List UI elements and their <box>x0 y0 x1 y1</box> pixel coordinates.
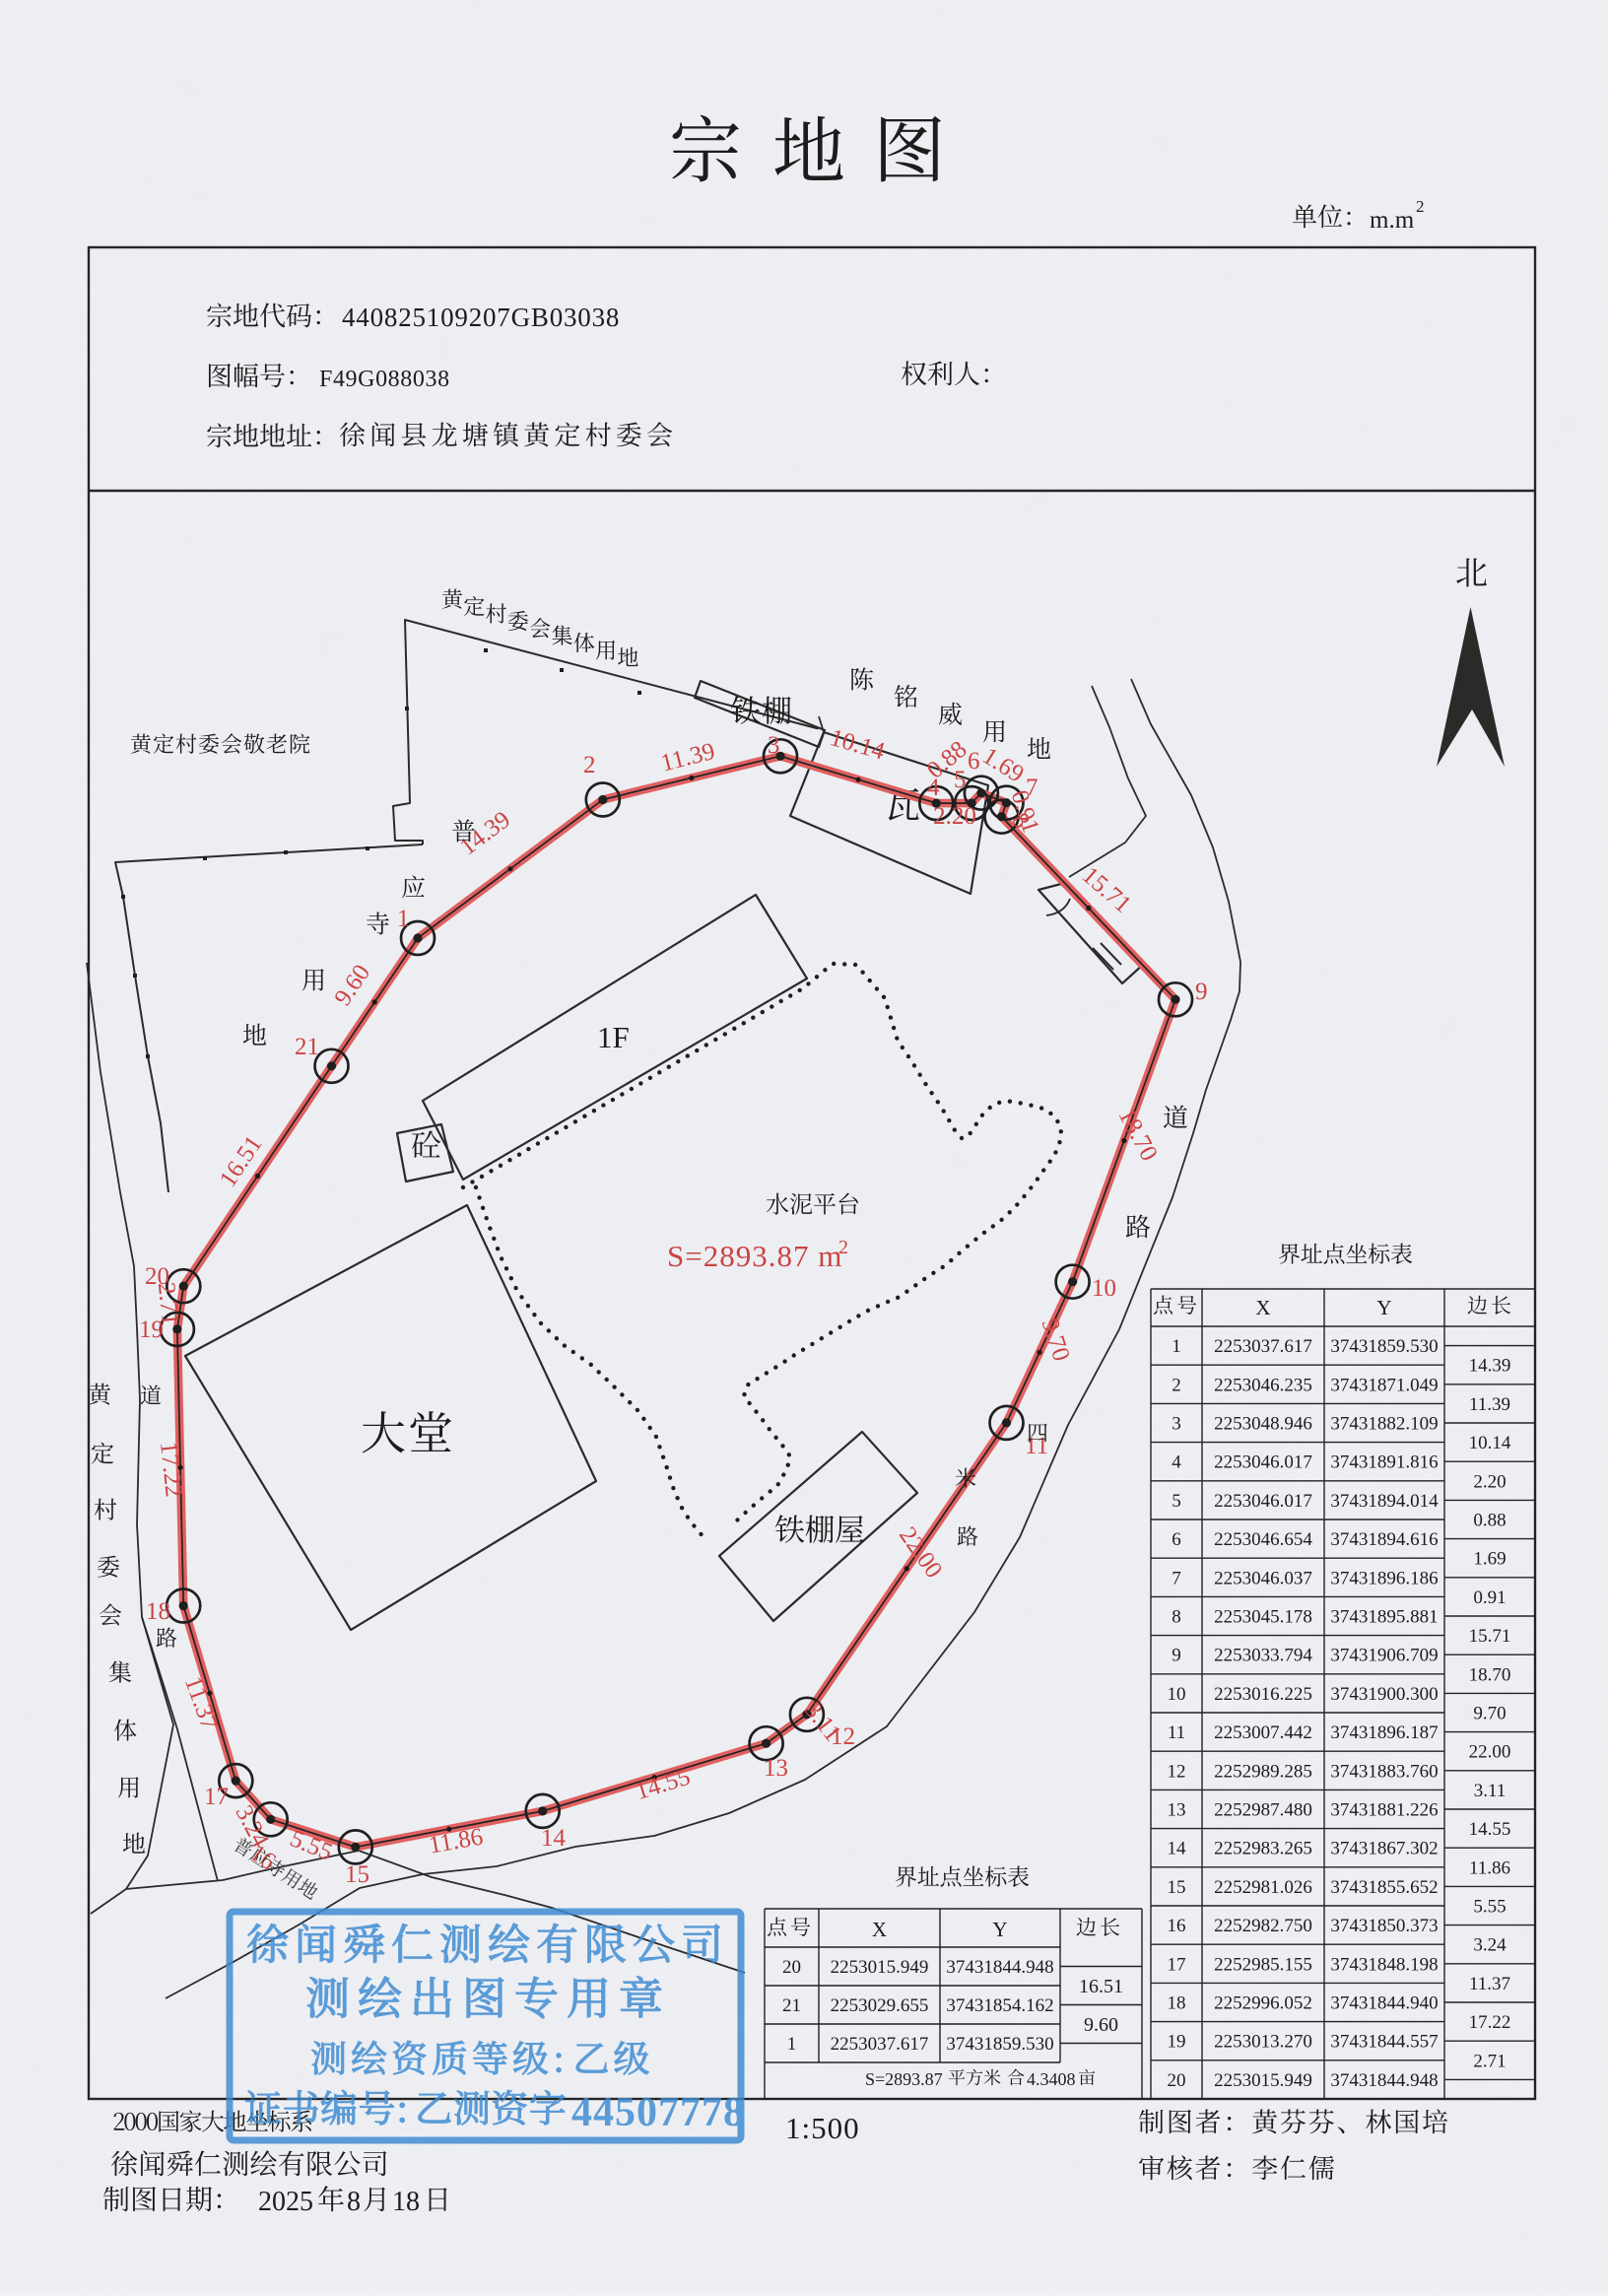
svg-text:22.00: 22.00 <box>1469 1742 1511 1763</box>
svg-text:37431895.881: 37431895.881 <box>1330 1607 1438 1628</box>
svg-text:37431867.302: 37431867.302 <box>1330 1839 1438 1859</box>
svg-text:16: 16 <box>1168 1916 1186 1936</box>
svg-text:21: 21 <box>295 1034 319 1060</box>
svg-text:2253016.225: 2253016.225 <box>1214 1684 1312 1705</box>
svg-text:440825109207GB03038: 440825109207GB03038 <box>342 303 620 332</box>
svg-text:37431855.652: 37431855.652 <box>1330 1877 1438 1898</box>
svg-text:13: 13 <box>1168 1800 1186 1821</box>
svg-text:37431844.948: 37431844.948 <box>1330 2070 1438 2091</box>
svg-text:2.71: 2.71 <box>153 1281 183 1326</box>
svg-text:37431896.186: 37431896.186 <box>1330 1568 1438 1588</box>
svg-text:11.37: 11.37 <box>1469 1974 1510 1994</box>
svg-text:2253046.235: 2253046.235 <box>1214 1375 1312 1395</box>
svg-text:2253046.654: 2253046.654 <box>1214 1529 1312 1550</box>
svg-text:5: 5 <box>1172 1491 1181 1512</box>
svg-text:2253029.655: 2253029.655 <box>831 1995 929 2016</box>
svg-text:16.51: 16.51 <box>1079 1976 1123 1997</box>
svg-text:37431894.616: 37431894.616 <box>1330 1529 1438 1550</box>
svg-text:11.86: 11.86 <box>1469 1857 1510 1878</box>
svg-text:14: 14 <box>1168 1839 1187 1859</box>
svg-text:3: 3 <box>1172 1414 1181 1435</box>
svg-text:2252983.265: 2252983.265 <box>1214 1839 1312 1859</box>
svg-text:2253033.794: 2253033.794 <box>1214 1646 1312 1666</box>
svg-text:3.11: 3.11 <box>1474 1781 1507 1801</box>
svg-text:2252996.052: 2252996.052 <box>1214 1993 1312 2014</box>
svg-text:9.60: 9.60 <box>1084 2014 1118 2036</box>
svg-text:37431854.162: 37431854.162 <box>946 1995 1053 2016</box>
svg-text:1: 1 <box>787 2034 797 2055</box>
svg-text:17: 17 <box>204 1784 229 1810</box>
svg-text:X: X <box>1255 1296 1270 1319</box>
svg-text:6: 6 <box>1172 1529 1181 1550</box>
svg-text:2.20: 2.20 <box>1473 1471 1506 1492</box>
svg-text:37431896.187: 37431896.187 <box>1330 1722 1438 1743</box>
svg-text:1F: 1F <box>597 1020 630 1054</box>
svg-text:1:500: 1:500 <box>785 2111 860 2145</box>
svg-text:37431894.014: 37431894.014 <box>1330 1491 1439 1512</box>
svg-text:2252985.155: 2252985.155 <box>1214 1954 1312 1975</box>
svg-text:2252981.026: 2252981.026 <box>1214 1877 1312 1898</box>
svg-text:S=2893.87: S=2893.87 <box>865 2069 943 2089</box>
svg-text:17: 17 <box>1168 1954 1186 1975</box>
svg-text:2025: 2025 <box>258 2187 313 2217</box>
svg-text:15.71: 15.71 <box>1469 1626 1511 1647</box>
svg-text:37431844.557: 37431844.557 <box>1330 2032 1438 2053</box>
svg-text:37431848.198: 37431848.198 <box>1330 1954 1438 1975</box>
svg-text:14: 14 <box>541 1825 567 1852</box>
svg-text:Y: Y <box>992 1918 1007 1941</box>
svg-text:F49G088038: F49G088038 <box>319 367 450 392</box>
svg-text:0.91: 0.91 <box>1473 1587 1506 1608</box>
svg-text:20: 20 <box>1168 2070 1186 2091</box>
svg-text:2253013.270: 2253013.270 <box>1214 2032 1312 2053</box>
svg-text:2252989.285: 2252989.285 <box>1214 1761 1312 1782</box>
svg-text:12: 12 <box>1168 1761 1186 1782</box>
svg-text:3: 3 <box>768 732 780 759</box>
svg-text:2: 2 <box>838 1237 848 1258</box>
svg-text:37431891.816: 37431891.816 <box>1330 1452 1438 1473</box>
svg-text:2252982.750: 2252982.750 <box>1214 1916 1312 1936</box>
svg-text:2253048.946: 2253048.946 <box>1214 1414 1312 1435</box>
svg-text:2: 2 <box>1416 197 1425 216</box>
svg-text:18: 18 <box>392 2187 420 2217</box>
svg-text:17.22: 17.22 <box>1469 2012 1511 2033</box>
svg-text:2253045.178: 2253045.178 <box>1214 1607 1312 1628</box>
svg-text:15: 15 <box>1168 1877 1186 1898</box>
svg-text:37431881.226: 37431881.226 <box>1330 1800 1438 1821</box>
svg-text:37431882.109: 37431882.109 <box>1330 1414 1438 1435</box>
svg-text:37431859.530: 37431859.530 <box>946 2034 1053 2055</box>
svg-text:37431906.709: 37431906.709 <box>1330 1646 1438 1666</box>
svg-text:15: 15 <box>345 1861 369 1888</box>
svg-text:2253046.017: 2253046.017 <box>1214 1452 1312 1473</box>
svg-text:6: 6 <box>968 748 980 775</box>
svg-text:18: 18 <box>1168 1993 1186 2014</box>
svg-text:44507778: 44507778 <box>571 2090 745 2135</box>
svg-text:8: 8 <box>1172 1607 1181 1628</box>
svg-text:1: 1 <box>1172 1336 1181 1357</box>
svg-text:0.88: 0.88 <box>1473 1511 1506 1531</box>
svg-text:X: X <box>872 1918 887 1941</box>
svg-text:4: 4 <box>1172 1452 1181 1473</box>
svg-text:2.20: 2.20 <box>933 803 976 830</box>
svg-text:4.3408: 4.3408 <box>1027 2069 1076 2089</box>
svg-text:2252987.480: 2252987.480 <box>1214 1800 1312 1821</box>
svg-text:11.39: 11.39 <box>1469 1394 1510 1415</box>
svg-text:8: 8 <box>347 2187 361 2217</box>
svg-text:2253015.949: 2253015.949 <box>1214 2070 1312 2091</box>
svg-text:2253037.617: 2253037.617 <box>1214 1336 1312 1357</box>
svg-text:2.71: 2.71 <box>1473 2051 1506 2071</box>
svg-text:Y: Y <box>1376 1296 1391 1319</box>
svg-text:2253007.442: 2253007.442 <box>1214 1722 1312 1743</box>
svg-text:9: 9 <box>1172 1646 1181 1666</box>
svg-text:10.14: 10.14 <box>1469 1433 1511 1453</box>
svg-text:14.55: 14.55 <box>1469 1819 1511 1840</box>
svg-text:2: 2 <box>1172 1375 1181 1395</box>
svg-text:37431844.940: 37431844.940 <box>1330 1993 1438 2014</box>
svg-text:2: 2 <box>583 752 596 778</box>
svg-text:m.m: m.m <box>1370 207 1415 234</box>
svg-text:37431900.300: 37431900.300 <box>1330 1684 1438 1705</box>
svg-text:3.24: 3.24 <box>1473 1935 1507 1956</box>
svg-text:11: 11 <box>1168 1722 1185 1743</box>
svg-text:13: 13 <box>764 1755 788 1782</box>
svg-text:5.55: 5.55 <box>1473 1897 1506 1918</box>
svg-text:2253046.017: 2253046.017 <box>1214 1491 1312 1512</box>
svg-text:7: 7 <box>1172 1568 1181 1588</box>
svg-text:1: 1 <box>397 906 410 932</box>
svg-text:37431883.760: 37431883.760 <box>1330 1761 1438 1782</box>
svg-text:S=2893.87 m: S=2893.87 m <box>667 1239 842 1273</box>
svg-text:10: 10 <box>1168 1684 1186 1705</box>
svg-text:9: 9 <box>1195 979 1208 1005</box>
svg-text:20: 20 <box>782 1957 801 1978</box>
svg-text:18: 18 <box>146 1598 170 1625</box>
svg-text:10: 10 <box>1092 1275 1116 1302</box>
svg-text:9.70: 9.70 <box>1473 1704 1506 1724</box>
svg-text:18.70: 18.70 <box>1469 1664 1511 1685</box>
svg-text:14.39: 14.39 <box>1469 1356 1511 1377</box>
svg-text:1.69: 1.69 <box>1473 1549 1506 1570</box>
svg-text:19: 19 <box>1168 2032 1186 2053</box>
svg-text:5: 5 <box>954 767 967 793</box>
svg-text:37431850.373: 37431850.373 <box>1330 1916 1438 1936</box>
svg-text:2253037.617: 2253037.617 <box>831 2034 929 2055</box>
svg-text:21: 21 <box>782 1995 801 2016</box>
svg-text:37431844.948: 37431844.948 <box>946 1957 1053 1978</box>
svg-text:2253015.949: 2253015.949 <box>831 1957 929 1978</box>
svg-text:2253046.037: 2253046.037 <box>1214 1568 1312 1588</box>
svg-text:37431871.049: 37431871.049 <box>1330 1375 1438 1395</box>
svg-text:37431859.530: 37431859.530 <box>1330 1336 1438 1357</box>
